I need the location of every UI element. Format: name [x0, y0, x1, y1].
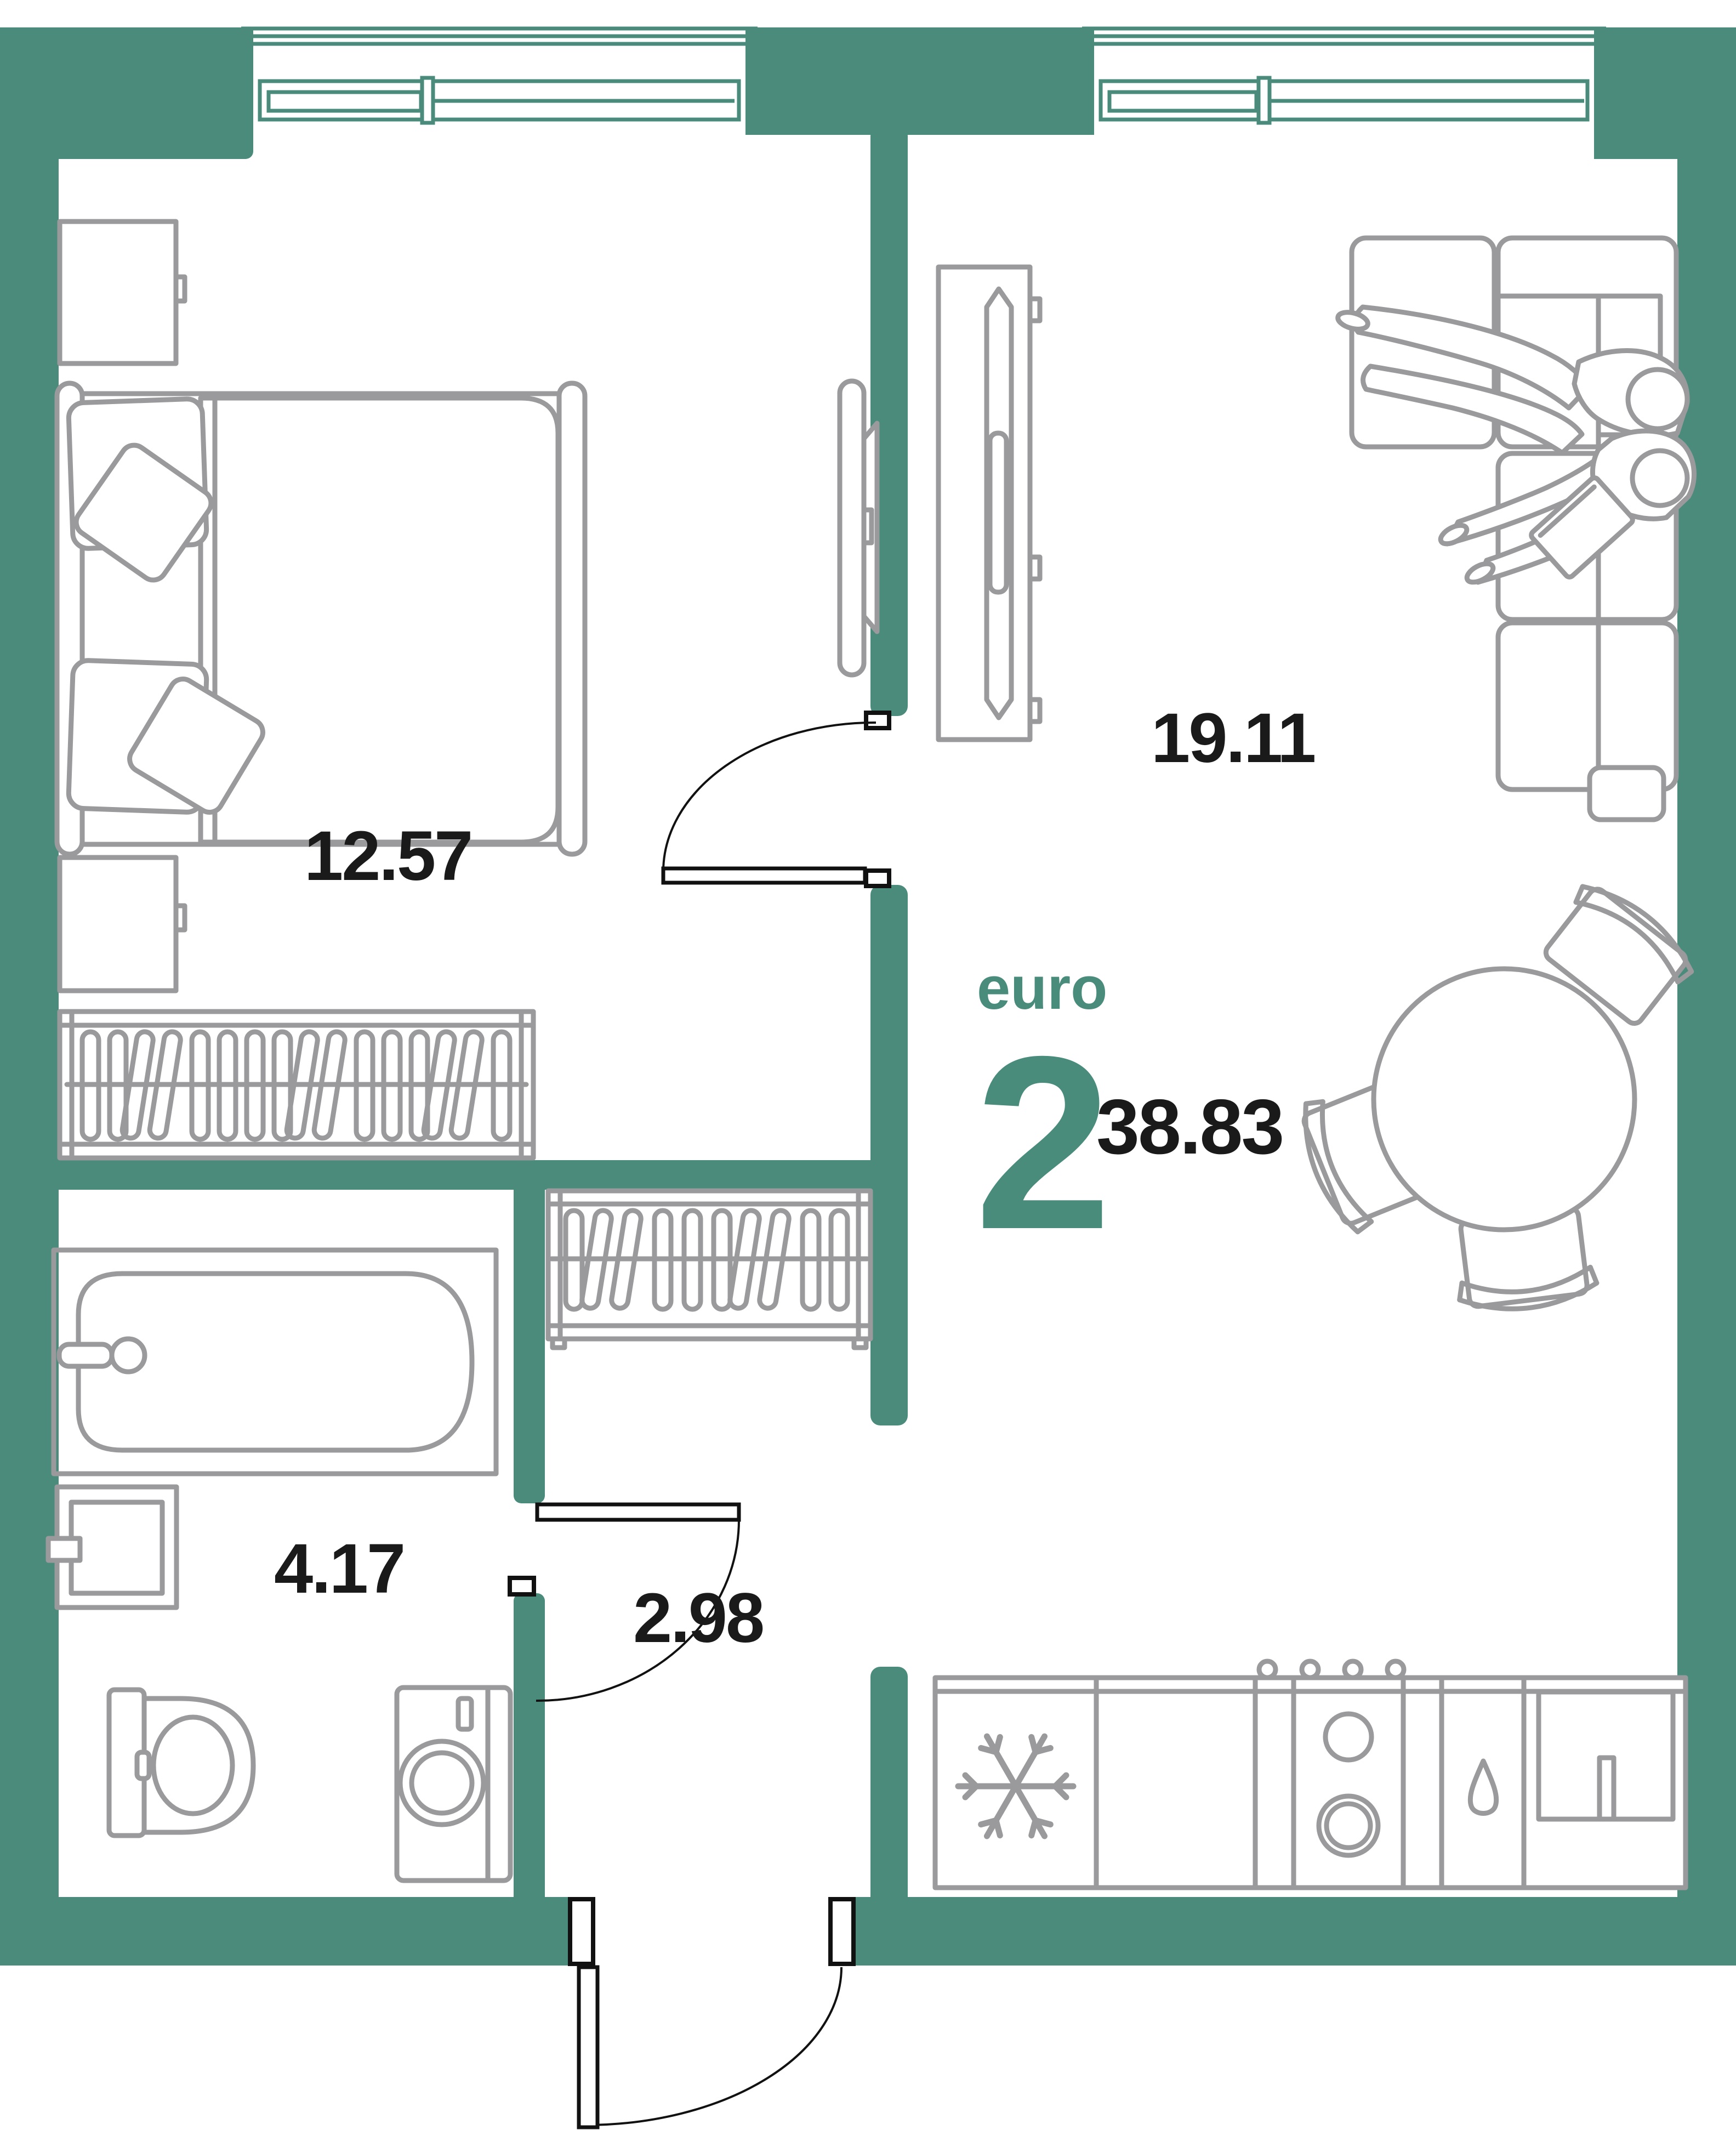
living-area-label: 19.11: [1151, 699, 1314, 777]
nightstand-top: [60, 221, 185, 363]
kitchen-counter: [935, 1661, 1686, 1888]
wardrobe-bedroom: [60, 1012, 533, 1158]
washbasin: [48, 1487, 177, 1608]
floor-plan-page: 12.57 19.11 4.17 2.98 euro 2 38.83: [0, 0, 1736, 2130]
floor-plan: 12.57 19.11 4.17 2.98 euro 2 38.83: [0, 0, 1736, 2130]
window-living: [1082, 21, 1606, 135]
hangers: [67, 1031, 526, 1139]
hangers: [551, 1209, 867, 1309]
hallway-area-label: 2.98: [633, 1579, 763, 1657]
sofa-armrest: [1590, 768, 1664, 820]
bedroom-area-label: 12.57: [304, 817, 471, 895]
rooms-count-label: 2: [975, 1006, 1112, 1281]
toilet: [109, 1690, 253, 1836]
person-head-2: [1632, 451, 1687, 505]
window-bedroom: [241, 21, 758, 135]
dining-set: [1291, 873, 1702, 1316]
wardrobe-hallway: [548, 1191, 870, 1348]
basin-tap: [48, 1538, 80, 1560]
tv-console-living: [938, 267, 1040, 740]
door-bedroom: [663, 713, 889, 886]
person-head: [1628, 370, 1687, 429]
bed: [57, 383, 585, 854]
faucet: [59, 1344, 112, 1366]
total-area-label: 38.83: [1096, 1083, 1283, 1171]
bathroom-area-label: 4.17: [274, 1530, 404, 1608]
bathtub: [54, 1250, 496, 1474]
plan-title: euro 2 38.83: [975, 955, 1283, 1281]
duvet: [201, 398, 558, 842]
door-entry: [570, 1899, 853, 2127]
dining-table: [1374, 969, 1635, 1230]
nightstand-bottom: [60, 857, 185, 991]
washing-machine: [397, 1688, 510, 1881]
